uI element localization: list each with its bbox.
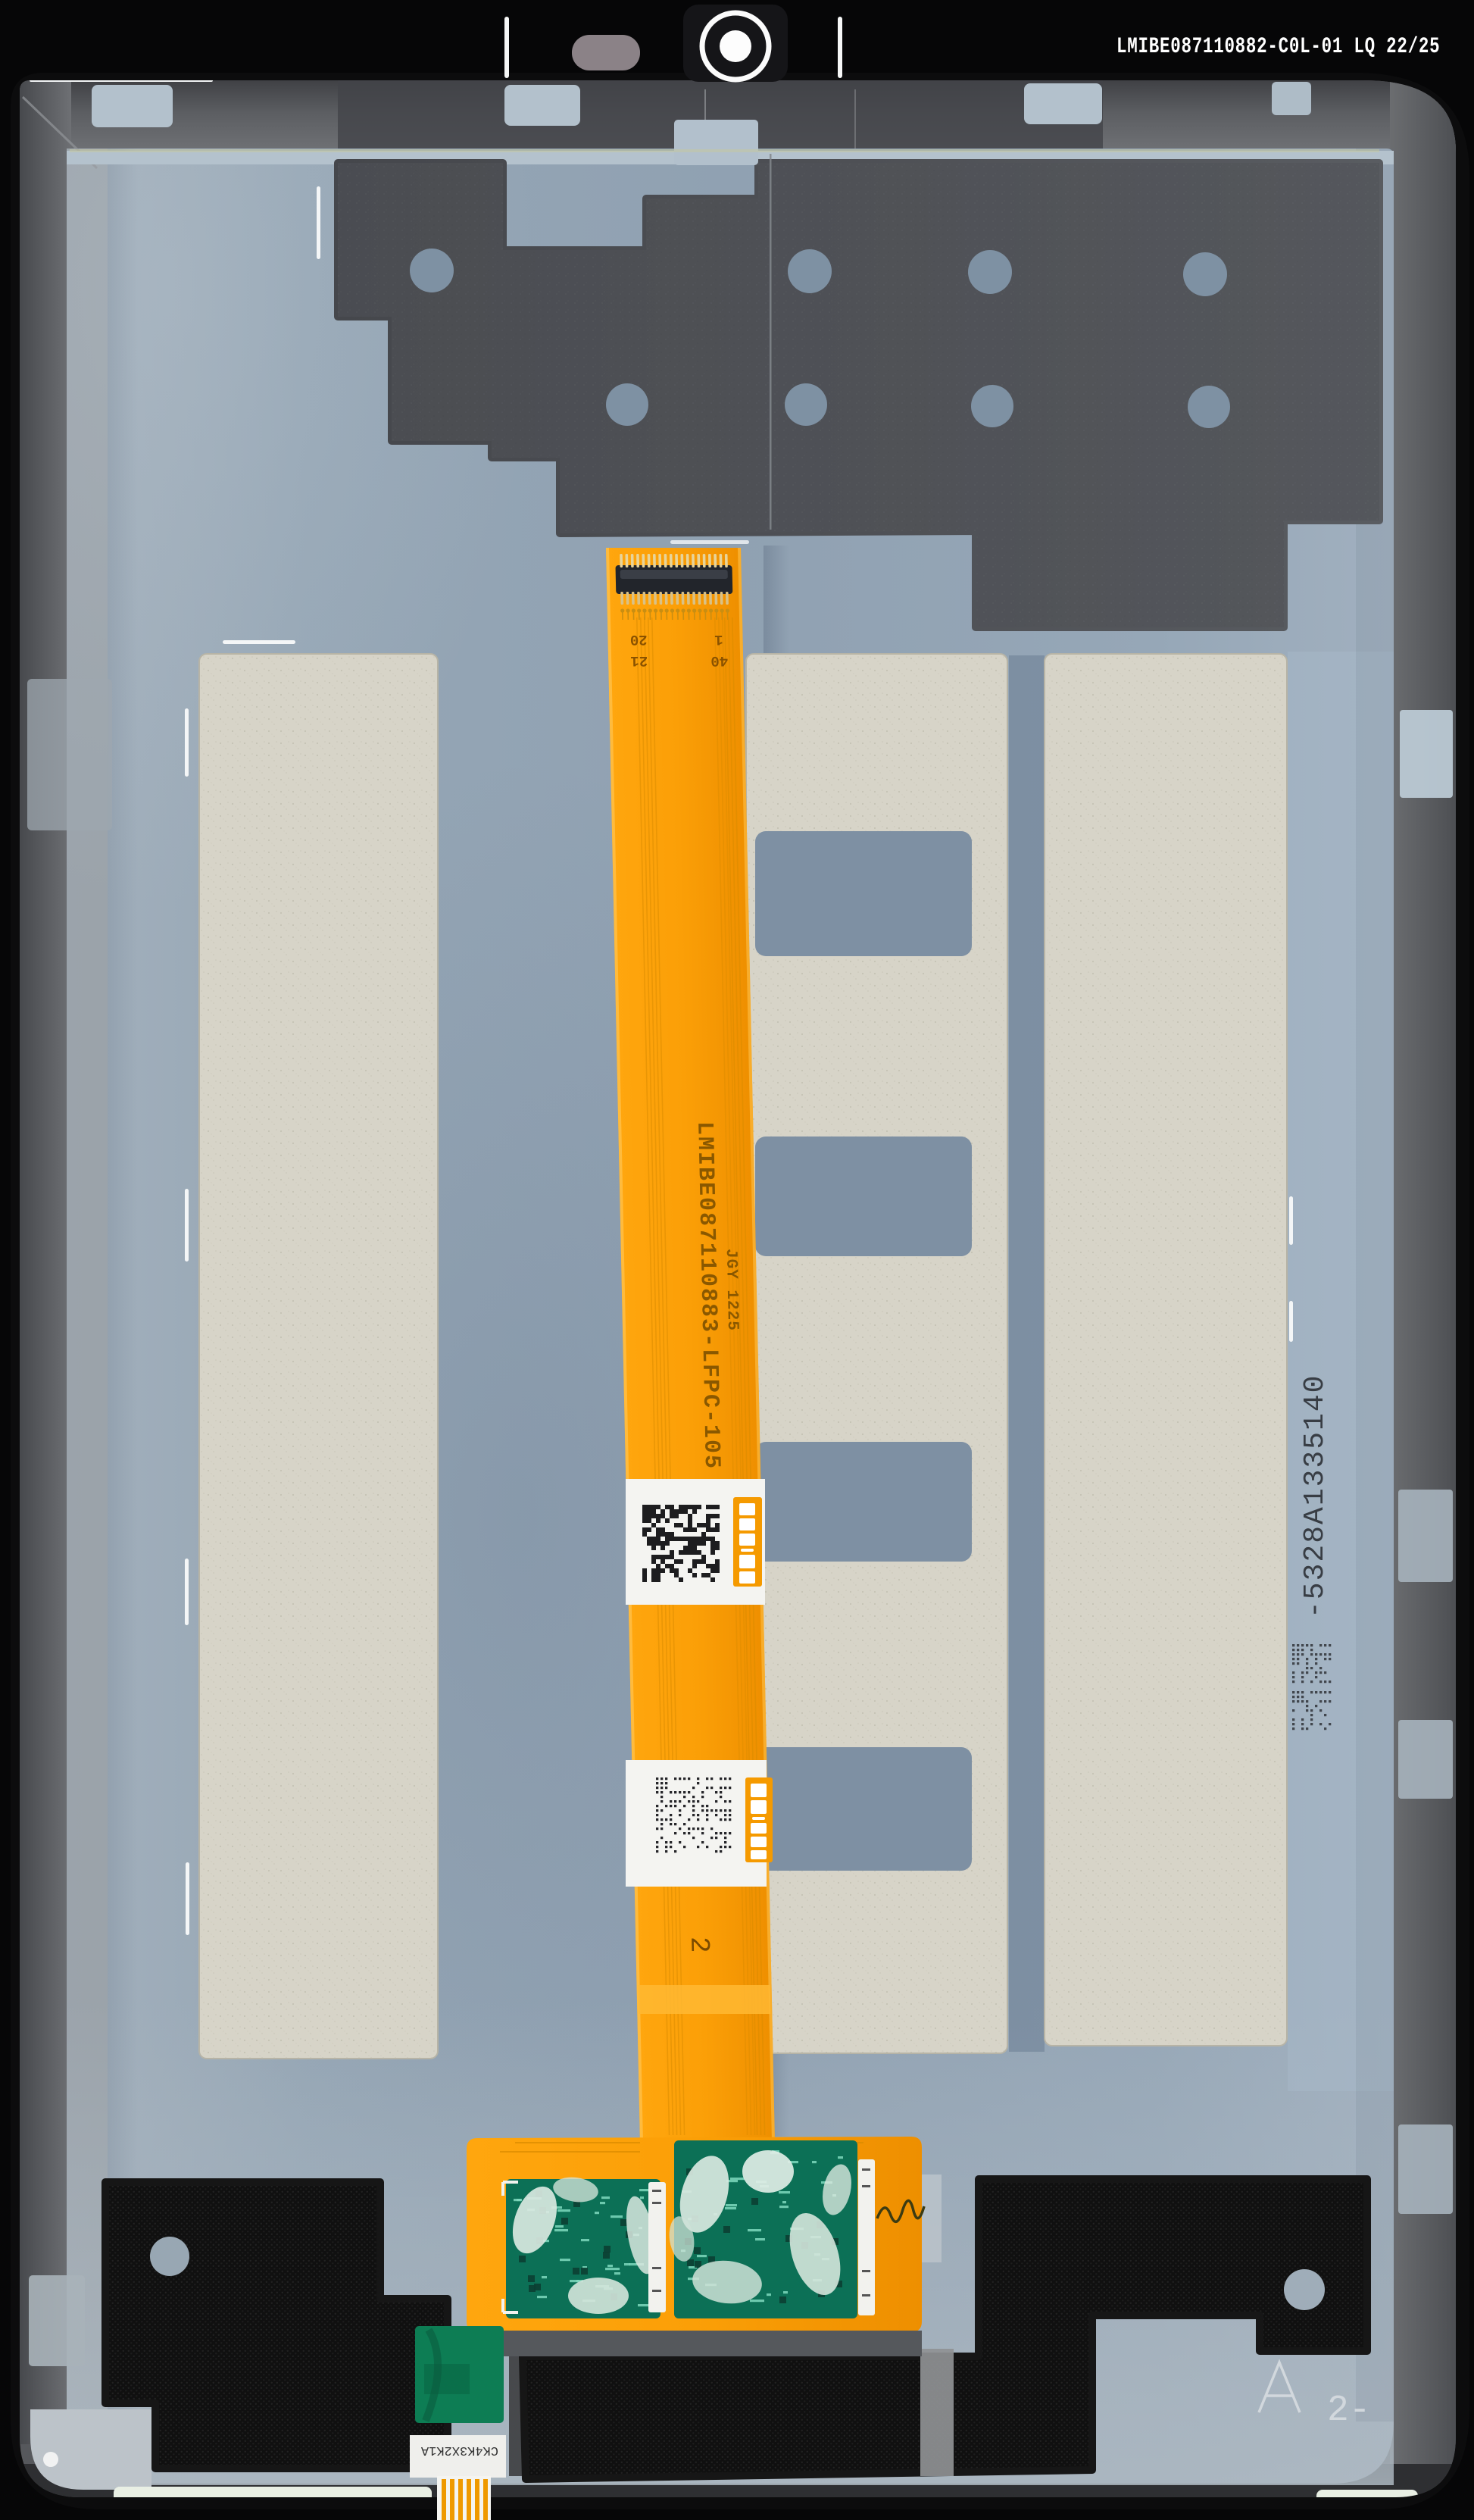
svg-text:LMIBE087110882-C0L-01 LQ 22/25: LMIBE087110882-C0L-01 LQ 22/25: [1116, 33, 1440, 59]
svg-text:21: 21: [630, 652, 648, 669]
svg-text:2‑: 2‑: [1327, 2390, 1371, 2431]
svg-text:20: 20: [630, 631, 648, 648]
svg-text:JGY 1225: JGY 1225: [722, 1249, 741, 1331]
svg-text:1: 1: [714, 631, 723, 648]
svg-text:CK4K3X2K1A: CK4K3X2K1A: [420, 2443, 498, 2457]
svg-text:2: 2: [683, 1937, 714, 1953]
svg-text:40: 40: [710, 652, 728, 669]
svg-text:-5328A1335140: -5328A1335140: [1299, 1374, 1332, 1618]
